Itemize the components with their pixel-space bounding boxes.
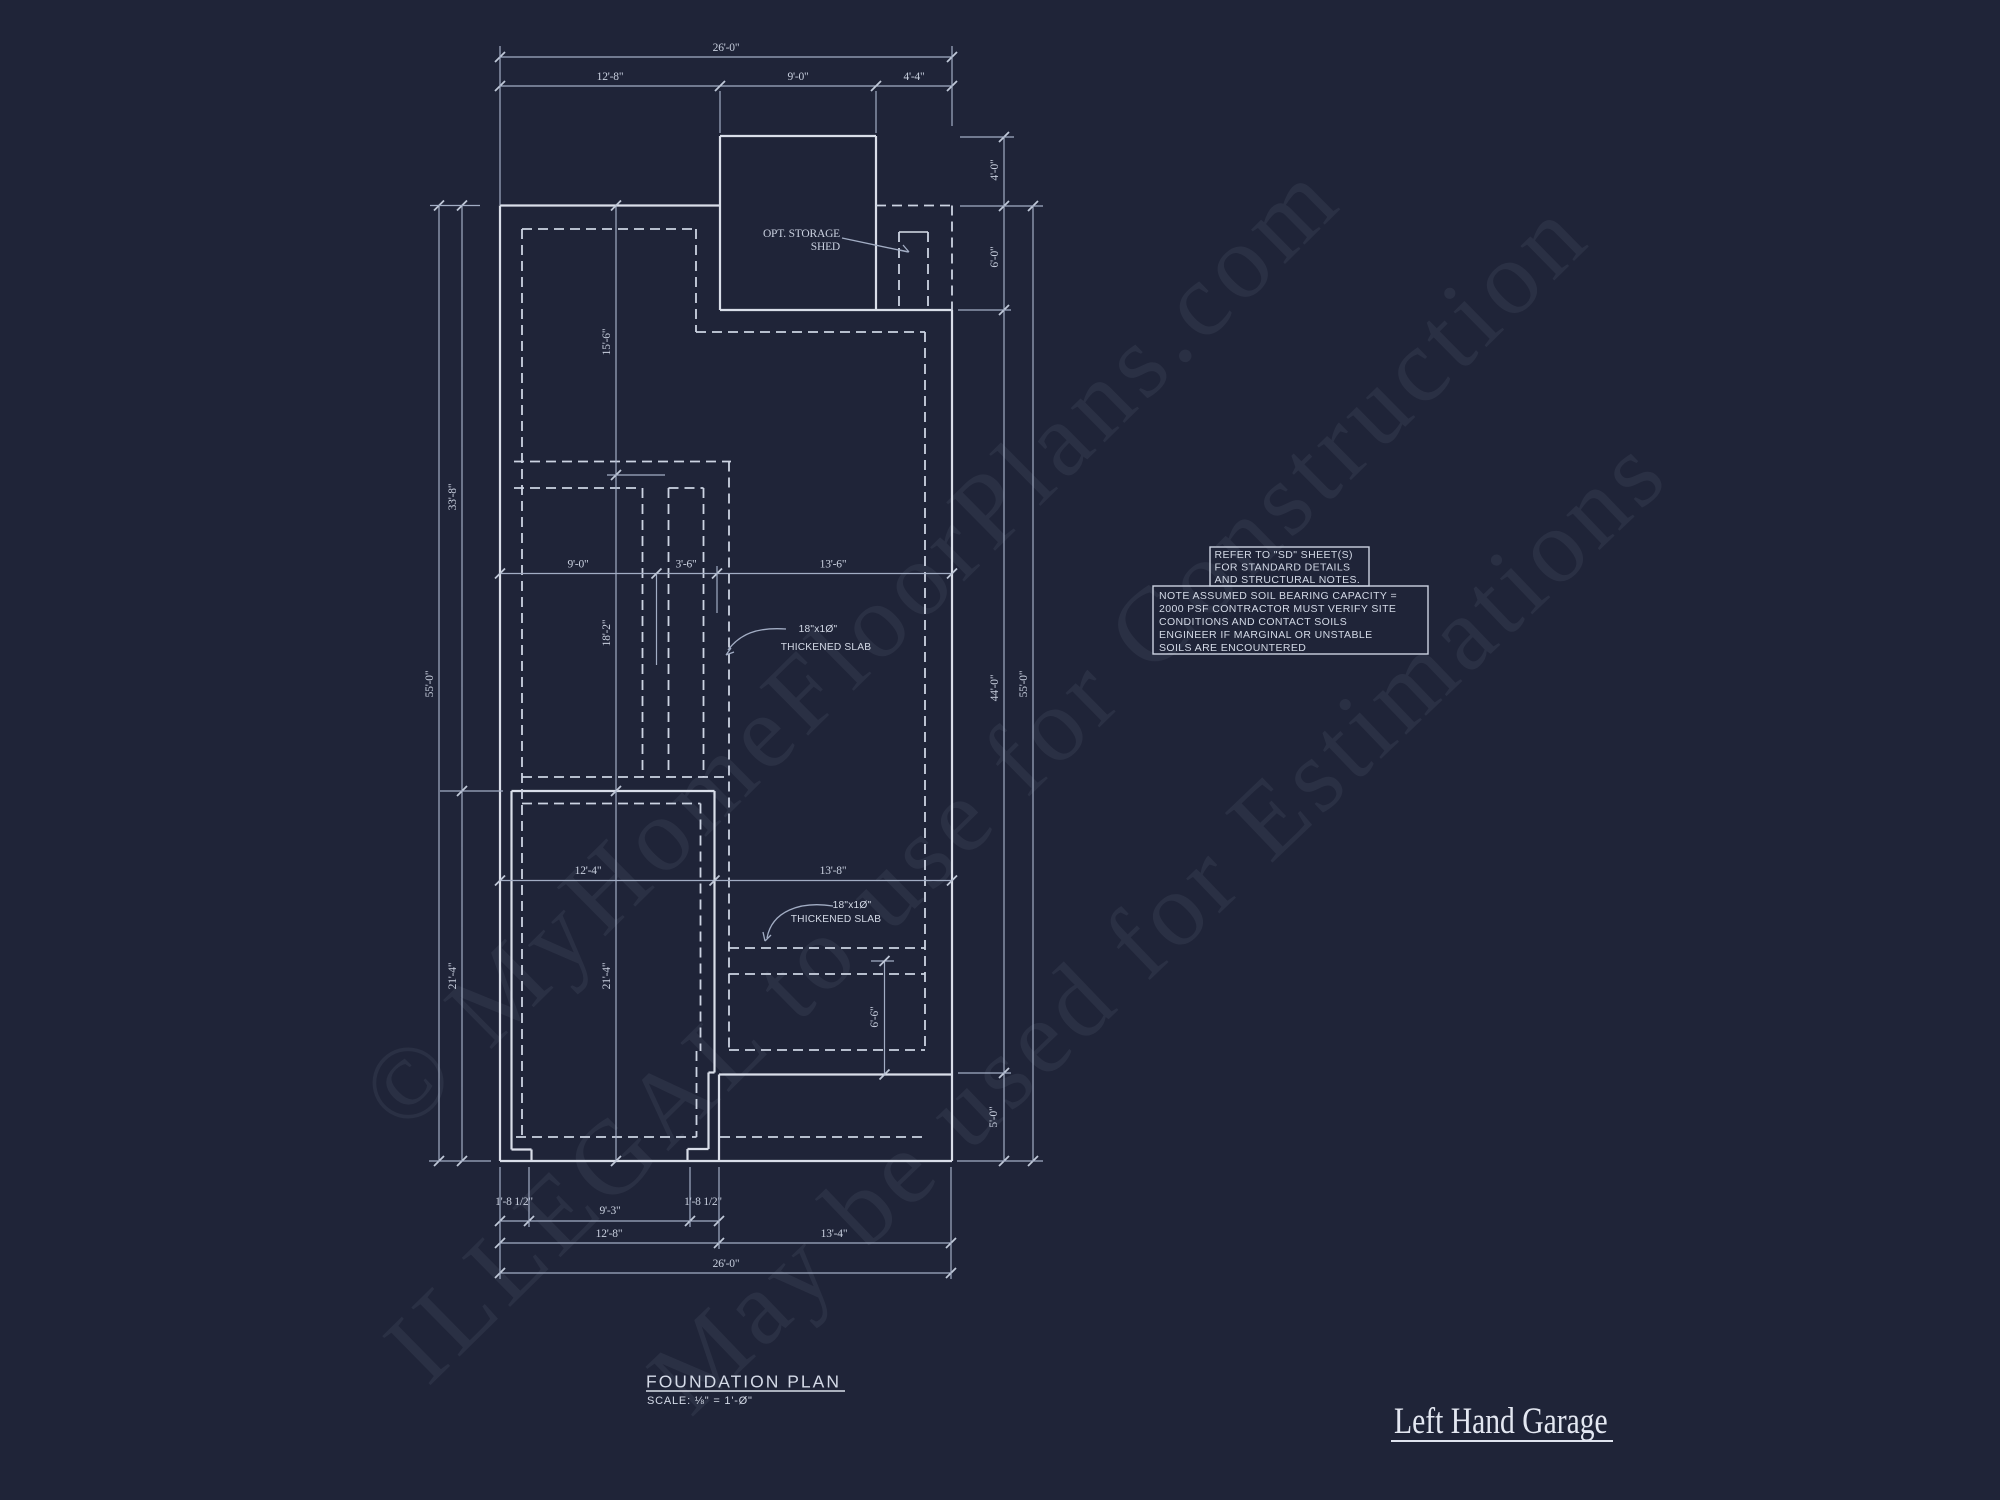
svg-text:4'-0": 4'-0" xyxy=(989,159,1001,180)
svg-text:12'-8": 12'-8" xyxy=(597,71,624,83)
svg-text:18"x1Ø": 18"x1Ø" xyxy=(833,900,872,911)
svg-text:18"x1Ø": 18"x1Ø" xyxy=(799,624,838,635)
svg-text:13'-6": 13'-6" xyxy=(820,559,847,571)
svg-text:26'-0": 26'-0" xyxy=(713,1258,740,1270)
svg-text:REFER TO "SD" SHEET(S): REFER TO "SD" SHEET(S) xyxy=(1215,549,1353,561)
svg-text:9'-0": 9'-0" xyxy=(567,559,588,571)
svg-text:12'-8": 12'-8" xyxy=(596,1228,623,1240)
svg-text:FOUNDATION PLAN: FOUNDATION PLAN xyxy=(646,1372,841,1392)
svg-text:THICKENED SLAB: THICKENED SLAB xyxy=(791,914,882,925)
svg-text:SHED: SHED xyxy=(811,241,840,253)
svg-text:6'-6": 6'-6" xyxy=(869,1006,881,1027)
svg-text:SCALE: ⅛" = 1'-Ø": SCALE: ⅛" = 1'-Ø" xyxy=(647,1395,753,1407)
svg-text:18'-2": 18'-2" xyxy=(601,620,613,647)
svg-text:21'-4": 21'-4" xyxy=(447,963,459,990)
svg-text:44'-0": 44'-0" xyxy=(989,675,1001,702)
svg-text:13'-4": 13'-4" xyxy=(821,1228,848,1240)
svg-text:4'-4": 4'-4" xyxy=(903,71,924,83)
svg-text:9'-3": 9'-3" xyxy=(599,1205,620,1217)
svg-text:26'-0": 26'-0" xyxy=(713,42,740,54)
svg-text:15'-6": 15'-6" xyxy=(601,329,613,356)
svg-text:FOR STANDARD DETAILS: FOR STANDARD DETAILS xyxy=(1215,562,1351,574)
svg-text:OPT. STORAGE: OPT. STORAGE xyxy=(763,228,840,240)
svg-text:AND STRUCTURAL NOTES.: AND STRUCTURAL NOTES. xyxy=(1215,574,1361,586)
svg-text:55'-0": 55'-0" xyxy=(424,671,436,698)
svg-text:1'-8 1/2": 1'-8 1/2" xyxy=(495,1196,533,1208)
svg-text:CONDITIONS AND CONTACT SOILS: CONDITIONS AND CONTACT SOILS xyxy=(1159,616,1347,628)
svg-text:13'-8": 13'-8" xyxy=(820,865,847,877)
svg-text:12'-4": 12'-4" xyxy=(575,865,602,877)
svg-text:ENGINEER IF MARGINAL OR UNSTAB: ENGINEER IF MARGINAL OR UNSTABLE xyxy=(1159,629,1373,641)
svg-text:SOILS ARE ENCOUNTERED: SOILS ARE ENCOUNTERED xyxy=(1159,642,1306,654)
svg-text:9'-0": 9'-0" xyxy=(787,71,808,83)
svg-text:3'-6": 3'-6" xyxy=(675,559,696,571)
svg-text:THICKENED SLAB: THICKENED SLAB xyxy=(781,642,872,653)
svg-text:6'-0": 6'-0" xyxy=(989,246,1001,267)
svg-text:21'-4": 21'-4" xyxy=(601,963,613,990)
svg-text:5'-0": 5'-0" xyxy=(988,1106,1000,1127)
svg-text:2000 PSF CONTRACTOR MUST VERIF: 2000 PSF CONTRACTOR MUST VERIFY SITE xyxy=(1159,603,1396,615)
svg-text:33'-8": 33'-8" xyxy=(447,484,459,511)
svg-text:55'-0": 55'-0" xyxy=(1018,671,1030,698)
svg-text:NOTE ASSUMED SOIL BEARING CAPA: NOTE ASSUMED SOIL BEARING CAPACITY = xyxy=(1159,590,1397,602)
